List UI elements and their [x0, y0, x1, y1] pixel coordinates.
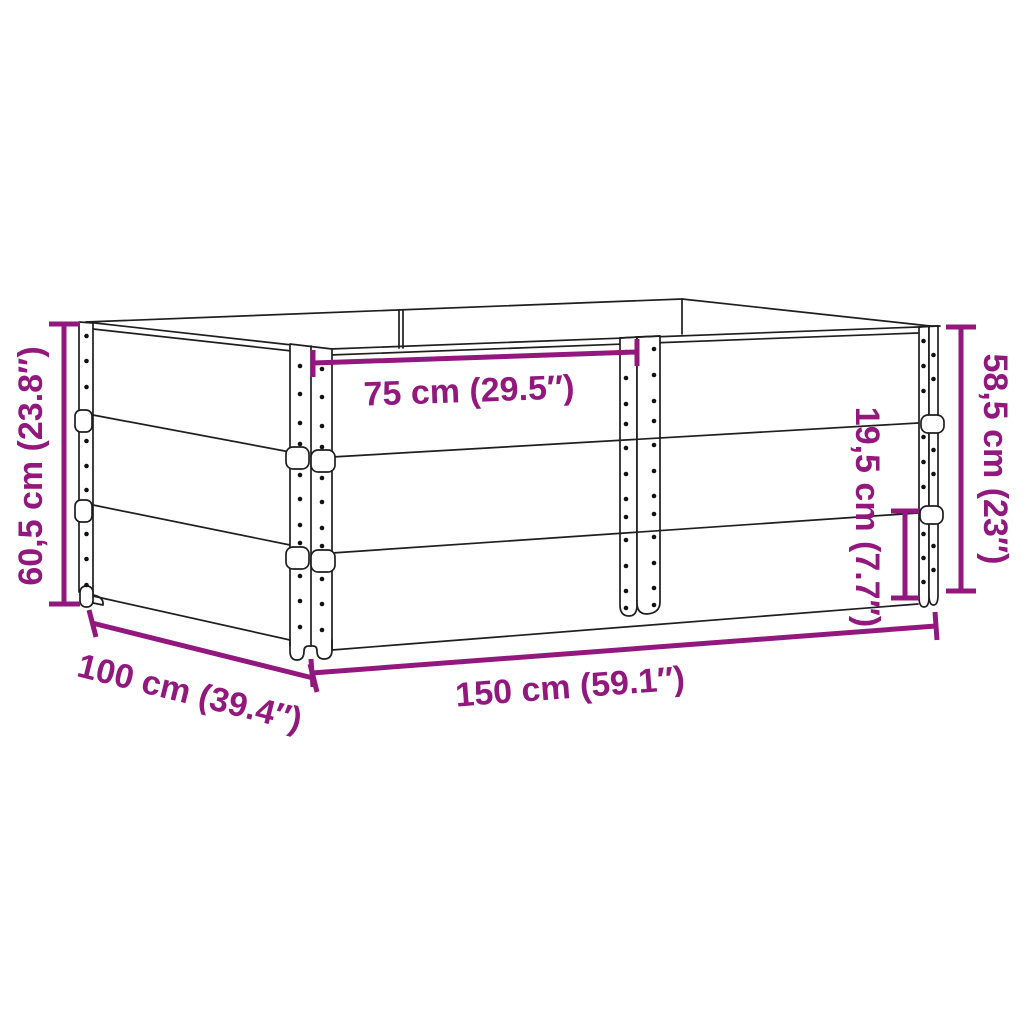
- front-left-post: [286, 344, 335, 660]
- dimension-upper-stack-height: 58,5 cm (23″): [946, 327, 1014, 591]
- post-foot: [80, 586, 93, 607]
- pallet-collar-line-art: [75, 299, 944, 660]
- pallet-collar-diagram: 60,5 cm (23.8″) 75 cm (29.5″) 19,5 cm (7…: [0, 0, 1024, 1024]
- depth-label: 100 cm (39.4″): [74, 647, 306, 739]
- hinge: [286, 447, 309, 469]
- hinge: [286, 547, 309, 569]
- dimension-depth: 100 cm (39.4″): [74, 610, 317, 739]
- collar-seams: [93, 415, 918, 553]
- top-rim: [86, 299, 940, 355]
- half-length-label: 75 cm (29.5″): [363, 368, 575, 413]
- hinge-tab: [920, 506, 943, 524]
- upper-stack-height-label: 58,5 cm (23″): [976, 354, 1014, 565]
- dimension-annotations: 60,5 cm (23.8″) 75 cm (29.5″) 19,5 cm (7…: [12, 324, 1014, 739]
- hinge: [311, 450, 335, 472]
- hinge: [311, 550, 335, 572]
- total-height-label: 60,5 cm (23.8″): [12, 346, 50, 585]
- bottom-edges: [93, 596, 918, 650]
- dimension-total-height: 60,5 cm (23.8″): [12, 324, 80, 604]
- product-dimension-diagram: 60,5 cm (23.8″) 75 cm (29.5″) 19,5 cm (7…: [0, 0, 1024, 1024]
- length-label: 150 cm (59.1″): [454, 659, 686, 714]
- dimension-collar-height: 19,5 cm (7.7″): [848, 407, 919, 627]
- hinge-tab: [75, 410, 92, 432]
- collar-height-label: 19,5 cm (7.7″): [848, 407, 886, 627]
- back-left-post: [75, 322, 103, 607]
- hinge-tab: [75, 500, 92, 522]
- hinge-tab: [921, 415, 944, 433]
